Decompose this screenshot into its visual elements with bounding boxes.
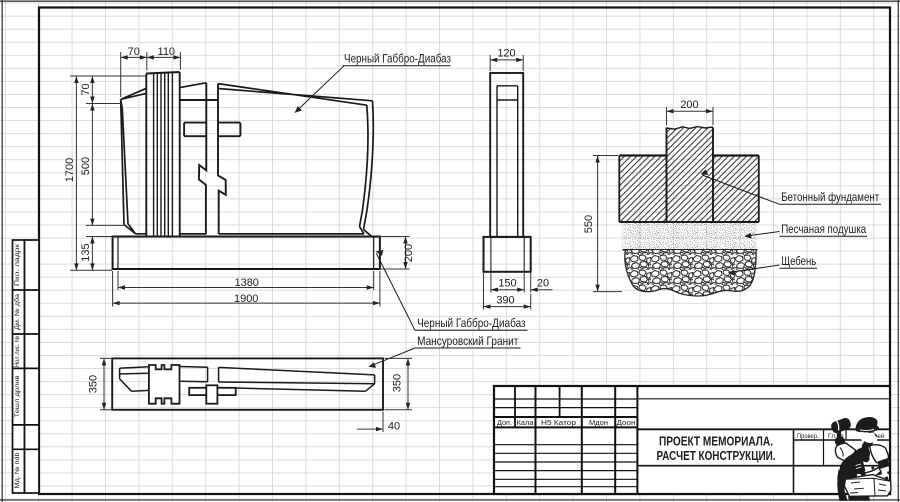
svg-text:120: 120 [497, 48, 515, 60]
svg-text:390: 390 [496, 294, 514, 306]
svg-text:Доп.: Доп. [497, 420, 512, 427]
svg-text:Щебень: Щебень [781, 254, 816, 268]
svg-text:Кала: Кала [517, 420, 534, 427]
svg-text:Черный Габбро-Диабаз: Черный Габбро-Диабаз [344, 52, 451, 66]
svg-text:Мд. № пdb: Мд. № пdb [14, 452, 21, 488]
svg-text:Н5 Катор: Н5 Катор [541, 420, 576, 427]
svg-text:Бетонный фундамент: Бетонный фундамент [781, 190, 879, 204]
svg-text:70: 70 [128, 46, 140, 58]
svg-text:200: 200 [680, 99, 698, 111]
svg-text:70: 70 [80, 83, 92, 95]
svg-text:Провер.: Провер. [797, 433, 819, 440]
svg-text:ПРОЕКТ МЕМОРИАЛА.: ПРОЕКТ МЕМОРИАЛА. [659, 434, 773, 449]
svg-text:Мдон: Мдон [589, 420, 608, 427]
svg-text:135: 135 [80, 243, 92, 261]
svg-text:1700: 1700 [64, 158, 76, 182]
svg-text:550: 550 [583, 215, 595, 233]
svg-text:1900: 1900 [234, 293, 258, 305]
svg-text:110: 110 [158, 46, 176, 58]
svg-text:350: 350 [88, 375, 100, 393]
svg-text:Мансуровский Гранит: Мансуровский Гранит [417, 334, 519, 348]
svg-text:Песчаная подушка: Песчаная подушка [781, 222, 866, 236]
svg-text:150: 150 [498, 277, 516, 289]
svg-text:500: 500 [80, 157, 92, 175]
svg-text:Дм. № дба: Дм. № дба [13, 293, 21, 330]
svg-text:350: 350 [392, 374, 404, 392]
svg-text:Доон: Доон [617, 420, 636, 427]
svg-text:Нол лис. №: Нол лис. № [14, 336, 21, 367]
svg-text:40: 40 [388, 421, 400, 433]
svg-text:Тешл дрлнв: Тешл дрлнв [14, 375, 21, 418]
svg-text:РАСЧЕТ КОНСТРУКЦИИ.: РАСЧЕТ КОНСТРУКЦИИ. [657, 448, 776, 463]
svg-text:Черный Габбро-Диабаз: Черный Габбро-Диабаз [417, 316, 526, 330]
svg-text:Пко. ладрк: Пко. ладрк [14, 244, 21, 286]
svg-text:200: 200 [403, 244, 415, 262]
svg-text:1380: 1380 [234, 277, 258, 289]
svg-text:20: 20 [537, 277, 549, 289]
